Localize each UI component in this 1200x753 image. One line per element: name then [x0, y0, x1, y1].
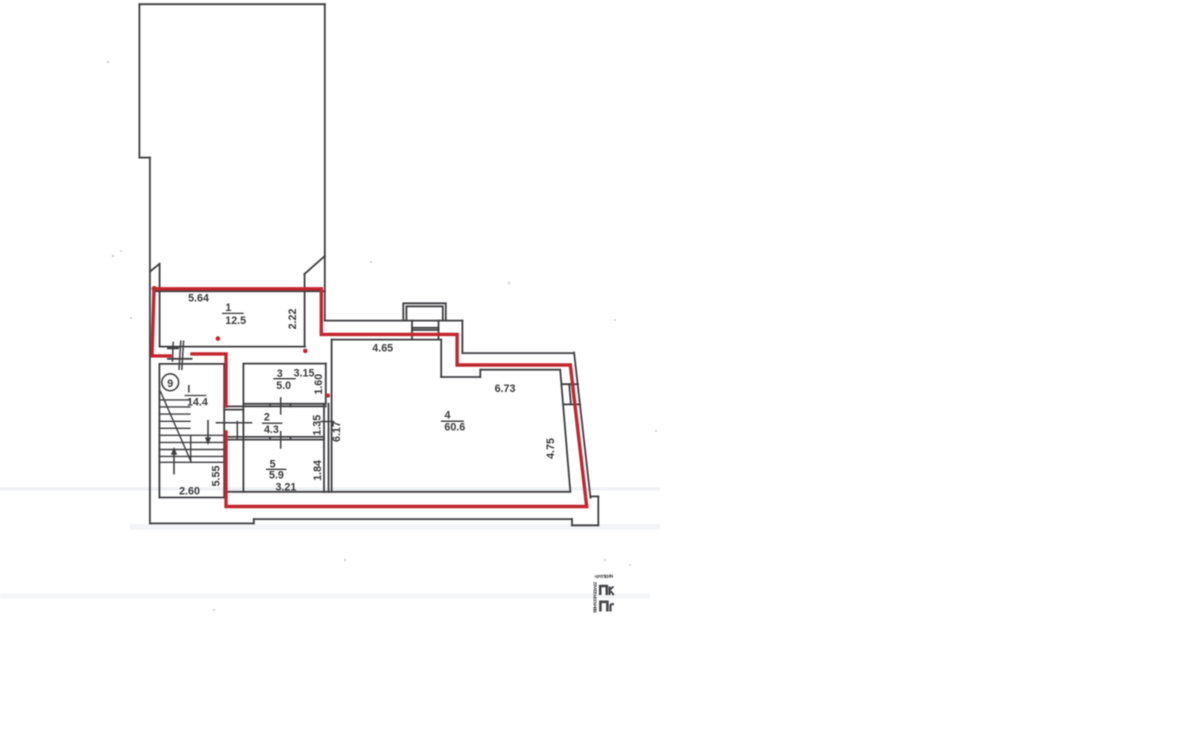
- svg-text:1: 1: [225, 302, 231, 314]
- svg-text:2: 2: [264, 411, 270, 423]
- svg-text:4: 4: [445, 409, 451, 421]
- svg-text:I: I: [187, 383, 190, 395]
- svg-text:1.35: 1.35: [311, 415, 323, 436]
- svg-text:5: 5: [270, 458, 276, 470]
- svg-text:3.21: 3.21: [275, 482, 296, 494]
- svg-text:6.73: 6.73: [495, 383, 516, 395]
- svg-text:1.84: 1.84: [312, 460, 324, 481]
- svg-text:2.22: 2.22: [287, 309, 299, 330]
- svg-text:1.60: 1.60: [313, 374, 325, 395]
- svg-text:12.5: 12.5: [225, 315, 246, 327]
- svg-text:3: 3: [277, 368, 283, 380]
- svg-text:5.9: 5.9: [269, 470, 284, 482]
- svg-text:5.55: 5.55: [210, 466, 222, 487]
- svg-text:·ΥΡΤΠΕΗΝ: ·ΥΡΤΠΕΗΝ: [594, 574, 614, 580]
- svg-text:5.0: 5.0: [276, 380, 291, 392]
- svg-text:3.15: 3.15: [294, 367, 315, 379]
- svg-text:14.4: 14.4: [187, 397, 208, 409]
- svg-text:ΒΒΗΛΟΟΡΟΖΔΛΔΖ: ΒΒΗΛΟΟΡΟΖΔΛΔΖ: [593, 581, 598, 612]
- svg-text:5.64: 5.64: [188, 293, 209, 305]
- svg-text:4.3: 4.3: [264, 424, 279, 436]
- svg-text:6.17: 6.17: [331, 421, 343, 442]
- svg-text:9: 9: [167, 378, 173, 390]
- svg-text:60.6: 60.6: [444, 422, 465, 434]
- svg-text:4.75: 4.75: [545, 438, 557, 459]
- svg-text:4.65: 4.65: [372, 342, 393, 354]
- svg-text:2.60: 2.60: [179, 486, 200, 498]
